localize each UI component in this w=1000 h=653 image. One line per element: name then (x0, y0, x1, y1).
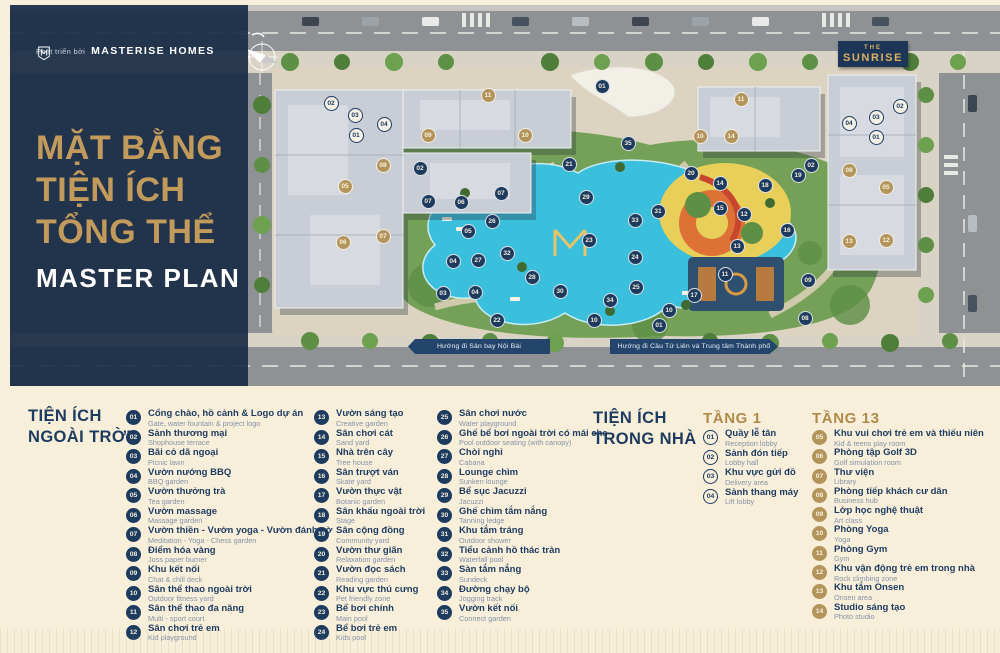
legend-item-texts: Sân chơi nướcWater playground (459, 409, 527, 428)
legend-item-number: 08 (126, 547, 141, 562)
legend-item: 25Sân chơi nướcWater playground (437, 409, 608, 429)
map-marker: 06 (454, 195, 469, 210)
map-marker: 33 (628, 213, 643, 228)
map-marker: 14 (713, 176, 728, 191)
legend-item-name-en: Multi - sport court (148, 615, 244, 623)
legend-item-name-vi: Sân thể thao đa năng (148, 604, 244, 615)
indoor-heading-line2: TRONG NHÀ (593, 429, 697, 450)
legend-outdoor-heading: TIỆN ÍCH NGOÀI TRỜI (28, 406, 131, 448)
legend-item-name-en: Meditation - Yoga - Chess garden (148, 537, 332, 545)
legend-item-name-en: Reception lobby (725, 440, 777, 448)
legend-item-texts: Vườn đọc sáchReading garden (336, 565, 406, 584)
badge-the: THE (864, 45, 882, 52)
legend-item-number: 01 (126, 410, 141, 425)
legend-item-number: 27 (437, 449, 452, 464)
legend-item-name-vi: Khu vui chơi trẻ em và thiếu niên (834, 429, 984, 440)
legend-item-number: 10 (812, 526, 827, 541)
map-marker: 09 (421, 128, 436, 143)
direction-banner-airport: Hướng đi Sân bay Nội Bài (408, 339, 550, 354)
legend-item-texts: Vườn nướng BBQBBQ garden (148, 468, 231, 487)
legend-item-name-en: Photo studio (834, 613, 905, 621)
legend-item-number: 07 (812, 469, 827, 484)
legend-item-name-en: Reading garden (336, 576, 406, 584)
legend-item-name-en: Pool outdoor seating (with canopy) (459, 439, 608, 447)
map-marker: 10 (693, 129, 708, 144)
legend-item: 06Phòng tập Golf 3DGolf simulation room (812, 448, 984, 467)
legend-item: 18Sân khấu ngoài trờiStage (314, 507, 425, 527)
legend-item: 14Studio sáng tạoPhoto studio (812, 603, 984, 622)
legend-item: 22Khu vực thú cưngPet friendly zone (314, 585, 425, 605)
legend-item-name-vi: Khu tắm tráng (459, 526, 523, 537)
map-marker: 19 (791, 168, 806, 183)
map-marker: 09 (801, 273, 816, 288)
legend-item-texts: Lounge chìmSunken lounge (459, 468, 518, 487)
legend-item: 13Vườn sáng tạoCreative garden (314, 409, 425, 429)
legend-item: 08Phòng tiếp khách cư dânBusiness hub (812, 487, 984, 506)
legend-item-name-en: Community yard (336, 537, 405, 545)
legend-item-number: 02 (126, 430, 141, 445)
legend-item-number: 32 (437, 547, 452, 562)
legend-item-texts: Sàn tắm nắngSundeck (459, 565, 521, 584)
map-marker: 17 (687, 288, 702, 303)
legend-item-number: 01 (703, 430, 718, 445)
legend-item: 03Khu vực gửi đồDelivery area (703, 468, 798, 488)
map-marker: 03 (348, 108, 363, 123)
developer-row: Phát triển bởi MASTERISE HOMES (36, 45, 215, 57)
legend-item-name-en: Kid & teens play room (834, 440, 984, 448)
legend-item-texts: Sân thể thao ngoài trờiOutdoor fitness y… (148, 585, 252, 604)
page-subtitle: MASTER PLAN (36, 263, 240, 294)
legend-item: 10Sân thể thao ngoài trờiOutdoor fitness… (126, 585, 332, 605)
legend-item-number: 10 (126, 586, 141, 601)
legend-item-name-vi: Vườn thực vật (336, 487, 402, 498)
map-marker: 10 (662, 303, 677, 318)
legend-item-number: 13 (812, 584, 827, 599)
legend-item-name-vi: Vườn kết nối (459, 604, 518, 615)
legend-item-number: 08 (812, 488, 827, 503)
map-marker: 28 (525, 270, 540, 285)
map-marker: 04 (842, 116, 857, 131)
legend-item-texts: Khu vui chơi trẻ em và thiếu niênKid & t… (834, 429, 984, 448)
map-marker: 10 (587, 313, 602, 328)
legend-item-texts: Sảnh thang máyLift lobby (725, 488, 798, 507)
map-marker: 13 (730, 239, 745, 254)
map-marker: 04 (446, 254, 461, 269)
legend-item-name-en: Onsen area (834, 594, 904, 602)
legend-item-texts: Sảnh đón tiếpLobby hall (725, 449, 788, 468)
outdoor-legend-column-3: 25Sân chơi nướcWater playground26Ghế bể … (437, 409, 608, 624)
legend-item-name-en: Botanic garden (336, 498, 402, 506)
map-marker: 02 (893, 99, 908, 114)
legend-item-texts: Lớp học nghệ thuậtArt class (834, 506, 923, 525)
legend-item-name-en: Cabana (459, 459, 503, 467)
legend-item-number: 05 (126, 488, 141, 503)
legend-item: 09Lớp học nghệ thuậtArt class (812, 506, 984, 525)
legend-item: 06Vườn massageMassage garden (126, 507, 332, 527)
legend-item: 33Sàn tắm nắngSundeck (437, 565, 608, 585)
developer-name: MASTERISE HOMES (91, 45, 215, 57)
legend-item-number: 22 (314, 586, 329, 601)
legend-item-name-vi: Vườn sáng tạo (336, 409, 403, 420)
legend-item: 04Vườn nướng BBQBBQ garden (126, 468, 332, 488)
map-marker: 11 (718, 267, 733, 282)
legend-item-number: 21 (314, 566, 329, 581)
map-marker: 27 (471, 253, 486, 268)
badge-name: SUNRISE (843, 52, 903, 64)
title-line-1: MẶT BẰNG (36, 127, 223, 169)
sidebar-panel: Phát triển bởi MASTERISE HOMES MẶT BẰNG … (10, 5, 248, 386)
floor-13-legend-list: 05Khu vui chơi trẻ em và thiếu niênKid &… (812, 429, 984, 622)
legend-item-name-en: Main pool (336, 615, 394, 623)
map-marker: 08 (376, 158, 391, 173)
legend-item: 16Sân trượt vánSkate yard (314, 468, 425, 488)
legend-item-name-en: Water playground (459, 420, 527, 428)
legend-item: 07Vườn thiền - Vườn yoga - Vườn đánh cờM… (126, 526, 332, 546)
map-marker: 31 (651, 204, 666, 219)
legend-item-texts: Vườn sáng tạoCreative garden (336, 409, 403, 428)
title-line-3: TỔNG THỂ (36, 211, 223, 253)
legend-item: 14Sân chơi cátSand yard (314, 429, 425, 449)
legend-item-texts: Phòng tiếp khách cư dânBusiness hub (834, 487, 948, 506)
legend-item-number: 04 (126, 469, 141, 484)
legend-item: 23Bể bơi chínhMain pool (314, 604, 425, 624)
legend-item-number: 04 (703, 489, 718, 504)
legend-item-texts: Vườn kết nốiConnect garden (459, 604, 518, 623)
legend-item-name-en: Chat & chill deck (148, 576, 202, 584)
legend-item-number: 09 (126, 566, 141, 581)
legend-item-number: 06 (126, 508, 141, 523)
legend-item-name-en: Sand yard (336, 439, 393, 447)
legend-item-texts: Vườn massageMassage garden (148, 507, 217, 526)
map-marker: 22 (490, 313, 505, 328)
legend-item-name-en: Stage (336, 517, 425, 525)
legend-item-name-vi: Sân chơi nước (459, 409, 527, 420)
legend-item-name-en: Connect garden (459, 615, 518, 623)
map-marker: 15 (713, 201, 728, 216)
map-marker: 03 (436, 286, 451, 301)
legend-item-texts: Vườn thực vậtBotanic garden (336, 487, 402, 506)
legend-item-number: 14 (812, 604, 827, 619)
map-marker: 30 (553, 284, 568, 299)
legend-item-number: 12 (812, 565, 827, 580)
legend-item-texts: Phòng GymGym (834, 545, 887, 564)
legend-item: 09Khu kết nốiChat & chill deck (126, 565, 332, 585)
legend-item: 02Sảnh đón tiếpLobby hall (703, 449, 798, 469)
legend-item-name-vi: Bể sục Jacuzzi (459, 487, 527, 498)
legend-item-number: 03 (703, 469, 718, 484)
map-marker: 01 (869, 130, 884, 145)
legend-item: 30Ghế chìm tắm nắngTanning ledge (437, 507, 608, 527)
legend-item-name-vi: Vườn đọc sách (336, 565, 406, 576)
legend-item-number: 14 (314, 430, 329, 445)
map-marker: 05 (461, 224, 476, 239)
legend-item-name-en: Art class (834, 517, 923, 525)
legend-item-name-en: Relaxation garden (336, 556, 402, 564)
legend-item-texts: Vườn thiền - Vườn yoga - Vườn đánh cờMed… (148, 526, 332, 545)
legend-item-texts: Khu kết nốiChat & chill deck (148, 565, 202, 584)
legend-item: 26Ghế bể bơi ngoài trời có mái chePool o… (437, 429, 608, 449)
map-marker: 35 (621, 136, 636, 151)
map-marker: 26 (485, 214, 500, 229)
map-marker: 23 (582, 233, 597, 248)
map-marker: 02 (324, 96, 339, 111)
map-marker: 11 (734, 92, 749, 107)
legend-item-name-en: Joss paper burner (148, 556, 216, 564)
legend-item: 19Sân cộng đồngCommunity yard (314, 526, 425, 546)
legend-item-number: 19 (314, 527, 329, 542)
legend-item-texts: Quầy lễ tânReception lobby (725, 429, 777, 448)
map-marker: 06 (336, 235, 351, 250)
outdoor-legend-column-2: 13Vườn sáng tạoCreative garden14Sân chơi… (314, 409, 425, 643)
map-marker: 11 (481, 88, 496, 103)
title-line-2: TIỆN ÍCH (36, 169, 223, 211)
legend-item-number: 20 (314, 547, 329, 562)
legend-item-texts: Chòi nghỉCabana (459, 448, 503, 467)
floor-1-legend-list: 01Quầy lễ tânReception lobby02Sảnh đón t… (703, 429, 798, 507)
legend-item-name-en: Tanning ledge (459, 517, 547, 525)
legend-item-name-en: Library (834, 478, 874, 486)
legend-item-texts: Sân cộng đồngCommunity yard (336, 526, 405, 545)
bottom-pinstripe-decoration (0, 629, 1000, 653)
masterplan-poster: Phát triển bởi MASTERISE HOMES MẶT BẰNG … (0, 0, 1000, 653)
map-marker: 18 (758, 178, 773, 193)
legend-item-name-en: Sunken lounge (459, 478, 518, 486)
aerial-map: Phát triển bởi MASTERISE HOMES MẶT BẰNG … (10, 5, 1000, 386)
map-marker: 02 (804, 158, 819, 173)
legend-item-texts: Sân thể thao đa năngMulti - sport court (148, 604, 244, 623)
legend-item: 21Vườn đọc sáchReading garden (314, 565, 425, 585)
legend-item-name-en: Outdoor shower (459, 537, 523, 545)
legend-item-number: 31 (437, 527, 452, 542)
legend-item-name-en: Delivery area (725, 479, 796, 487)
legend-item-texts: Bể sục JacuzziJacuzzi (459, 487, 527, 506)
legend-item-name-en: Pet friendly zone (336, 595, 418, 603)
legend-item-number: 30 (437, 508, 452, 523)
legend-item-name-vi: Bể bơi chính (336, 604, 394, 615)
legend-item-texts: Ghế bể bơi ngoài trời có mái chePool out… (459, 429, 608, 448)
legend-item-name-en: Shophouse terrace (148, 439, 227, 447)
legend-item: 08Điểm hóa vàngJoss paper burner (126, 546, 332, 566)
legend-item-name-vi: Chòi nghỉ (459, 448, 503, 459)
map-marker: 21 (562, 157, 577, 172)
legend-item-texts: Vườn thư giãnRelaxation garden (336, 546, 402, 565)
legend-item: 17Vườn thực vậtBotanic garden (314, 487, 425, 507)
map-marker: 01 (652, 318, 667, 333)
legend-item: 05Khu vui chơi trẻ em và thiếu niênKid &… (812, 429, 984, 448)
legend-item-texts: Sân trượt vánSkate yard (336, 468, 399, 487)
legend-item: 34Đường chạy bộJogging track (437, 585, 608, 605)
legend-item: 35Vườn kết nốiConnect garden (437, 604, 608, 624)
legend-item-name-en: Waterfall pool (459, 556, 560, 564)
legend-item-texts: Khu vực thú cưngPet friendly zone (336, 585, 418, 604)
map-marker: 05 (338, 179, 353, 194)
legend-item-texts: Phòng YogaYoga (834, 525, 889, 544)
legend-item-name-en: Jogging track (459, 595, 530, 603)
map-marker: 01 (595, 79, 610, 94)
legend-item-number: 29 (437, 488, 452, 503)
map-marker: 16 (780, 223, 795, 238)
legend-item: 05Vườn thưởng tràTea garden (126, 487, 332, 507)
page-title: MẶT BẰNG TIỆN ÍCH TỔNG THỂ (36, 127, 223, 253)
legend-item-texts: Khu tắm trángOutdoor shower (459, 526, 523, 545)
legend-item-name-en: Gate, water fountain & project logo (148, 420, 303, 428)
legend-item: 01Cổng chào, hồ cảnh & Logo dự ánGate, w… (126, 409, 332, 429)
legend-item-number: 11 (126, 605, 141, 620)
legend-item-number: 26 (437, 430, 452, 445)
legend-item-texts: Sảnh thương mạiShophouse terrace (148, 429, 227, 448)
legend-item-texts: Nhà trên câyTree house (336, 448, 393, 467)
indoor-heading-line1: TIỆN ÍCH (593, 408, 697, 429)
legend-item-number: 13 (314, 410, 329, 425)
legend-item: 01Quầy lễ tânReception lobby (703, 429, 798, 449)
legend-item-texts: Điểm hóa vàngJoss paper burner (148, 546, 216, 565)
legend-item-texts: Tiểu cảnh hồ thác trànWaterfall pool (459, 546, 560, 565)
floor-1-label: TẦNG 1 (703, 410, 762, 427)
legend-item-name-vi: Vườn thiền - Vườn yoga - Vườn đánh cờ (148, 526, 332, 537)
legend-indoor-heading: TIỆN ÍCH TRONG NHÀ (593, 408, 697, 450)
legend-item-name-vi: Quầy lễ tân (725, 429, 777, 440)
legend-item-name-vi: Khu vận động trẻ em trong nhà (834, 564, 975, 575)
legend-item-name-en: BBQ garden (148, 478, 231, 486)
legend-item-number: 23 (314, 605, 329, 620)
legend-item: 32Tiểu cảnh hồ thác trànWaterfall pool (437, 546, 608, 566)
legend-item: 27Chòi nghỉCabana (437, 448, 608, 468)
legend-item: 03Bãi cỏ dã ngoạiPicnic lawn (126, 448, 332, 468)
legend-item-texts: Bãi cỏ dã ngoạiPicnic lawn (148, 448, 218, 467)
legend-item-name-en: Massage garden (148, 517, 217, 525)
legend-item-texts: Khu vận động trẻ em trong nhàRock climbi… (834, 564, 975, 583)
legend-item-texts: Sân khấu ngoài trờiStage (336, 507, 425, 526)
map-marker: 12 (879, 233, 894, 248)
legend-item-texts: Vườn thưởng tràTea garden (148, 487, 225, 506)
legend-item-name-en: Gym (834, 555, 887, 563)
legend-item-name-en: Business hub (834, 497, 948, 505)
legend-item-name-en: Creative garden (336, 420, 403, 428)
map-marker: 07 (376, 229, 391, 244)
map-marker: 01 (349, 128, 364, 143)
legend-item-name-vi: Sân cộng đồng (336, 526, 405, 537)
map-marker: 07 (421, 194, 436, 209)
map-marker: 14 (724, 129, 739, 144)
legend-item-name-vi: Nhà trên cây (336, 448, 393, 459)
project-badge: THE SUNRISE (838, 41, 908, 67)
legend-item-name-vi: Bãi cỏ dã ngoại (148, 448, 218, 459)
legend-item: 10Phòng YogaYoga (812, 525, 984, 544)
legend-item-number: 09 (812, 507, 827, 522)
outdoor-heading-line1: TIỆN ÍCH (28, 406, 131, 427)
legend-item-number: 17 (314, 488, 329, 503)
outdoor-heading-line2: NGOÀI TRỜI (28, 427, 131, 448)
legend-item: 11Sân thể thao đa năngMulti - sport cour… (126, 604, 332, 624)
legend-item-number: 25 (437, 410, 452, 425)
legend-item-number: 06 (812, 449, 827, 464)
legend-item-number: 03 (126, 449, 141, 464)
legend-item-number: 28 (437, 469, 452, 484)
map-marker: 07 (494, 186, 509, 201)
legend-item: 15Nhà trên câyTree house (314, 448, 425, 468)
legend-item: 13Khu tắm OnsenOnsen area (812, 583, 984, 602)
map-marker: 24 (628, 250, 643, 265)
legend-item-texts: Khu tắm OnsenOnsen area (834, 583, 904, 602)
legend-item-name-en: Outdoor fitness yard (148, 595, 252, 603)
map-marker: 29 (579, 190, 594, 205)
legend-item-texts: Studio sáng tạoPhoto studio (834, 603, 905, 622)
legend-item-name-vi: Sàn tắm nắng (459, 565, 521, 576)
map-marker: 32 (500, 246, 515, 261)
map-marker: 03 (869, 110, 884, 125)
legend-item-number: 18 (314, 508, 329, 523)
legend-item-name-vi: Cổng chào, hồ cảnh & Logo dự án (148, 409, 303, 420)
legend-item-name-vi: Khu kết nối (148, 565, 202, 576)
legend-item: 28Lounge chìmSunken lounge (437, 468, 608, 488)
legend-item: 20Vườn thư giãnRelaxation garden (314, 546, 425, 566)
legend-item-name-en: Yoga (834, 536, 889, 544)
masterise-logo (36, 45, 52, 61)
legend-item-name-en: Sundeck (459, 576, 521, 584)
legend-item-name-vi: Vườn thưởng trà (148, 487, 225, 498)
legend-item: 07Thư việnLibrary (812, 468, 984, 487)
legend-item-texts: Khu vực gửi đồDelivery area (725, 468, 796, 487)
legend-item: 04Sảnh thang máyLift lobby (703, 488, 798, 508)
legend-item-number: 16 (314, 469, 329, 484)
legend-item-number: 34 (437, 586, 452, 601)
legend-item-number: 15 (314, 449, 329, 464)
map-marker: 08 (798, 311, 813, 326)
legend-item-name-en: Jacuzzi (459, 498, 527, 506)
map-marker: 04 (377, 117, 392, 132)
legend-item: 02Sảnh thương mạiShophouse terrace (126, 429, 332, 449)
legend-item-number: 07 (126, 527, 141, 542)
outdoor-legend-column-1: 01Cổng chào, hồ cảnh & Logo dự ánGate, w… (126, 409, 332, 643)
map-marker: 04 (468, 285, 483, 300)
legend-item-texts: Đường chạy bộJogging track (459, 585, 530, 604)
map-marker: 05 (879, 180, 894, 195)
legend-item-number: 11 (812, 546, 827, 561)
map-marker: 12 (737, 207, 752, 222)
legend-item-texts: Sân chơi cátSand yard (336, 429, 393, 448)
floor-13-label: TẦNG 13 (812, 410, 880, 427)
legend-item-name-en: Lobby hall (725, 459, 788, 467)
legend-item-name-en: Golf simulation room (834, 459, 917, 467)
legend-item-number: 35 (437, 605, 452, 620)
legend-item: 11Phòng GymGym (812, 545, 984, 564)
map-marker: 25 (629, 280, 644, 295)
map-marker: 20 (684, 166, 699, 181)
legend-item-texts: Cổng chào, hồ cảnh & Logo dự ánGate, wat… (148, 409, 303, 428)
legend-item: 12Khu vận động trẻ em trong nhàRock clim… (812, 564, 984, 583)
legend-item-name-en: Tea garden (148, 498, 225, 506)
legend-item-number: 05 (812, 430, 827, 445)
legend-item-texts: Bể bơi chínhMain pool (336, 604, 394, 623)
legend-item: 29Bể sục JacuzziJacuzzi (437, 487, 608, 507)
legend-item: 31Khu tắm trángOutdoor shower (437, 526, 608, 546)
legend-item-name-en: Tree house (336, 459, 393, 467)
legend-item-name-en: Lift lobby (725, 498, 798, 506)
map-marker: 10 (518, 128, 533, 143)
legend-item-name-en: Skate yard (336, 478, 399, 486)
legend-item-name-en: Picnic lawn (148, 459, 218, 467)
legend-item-texts: Ghế chìm tắm nắngTanning ledge (459, 507, 547, 526)
map-marker: 08 (842, 163, 857, 178)
map-marker: 13 (842, 234, 857, 249)
legend-item-number: 02 (703, 450, 718, 465)
legend-item-texts: Thư việnLibrary (834, 468, 874, 487)
legend-item-texts: Phòng tập Golf 3DGolf simulation room (834, 448, 917, 467)
map-marker: 02 (413, 161, 428, 176)
direction-banner-city: Hướng đi Cầu Tứ Liên và Trung tâm Thành … (610, 339, 778, 354)
map-marker: 34 (603, 293, 618, 308)
legend-item-number: 33 (437, 566, 452, 581)
